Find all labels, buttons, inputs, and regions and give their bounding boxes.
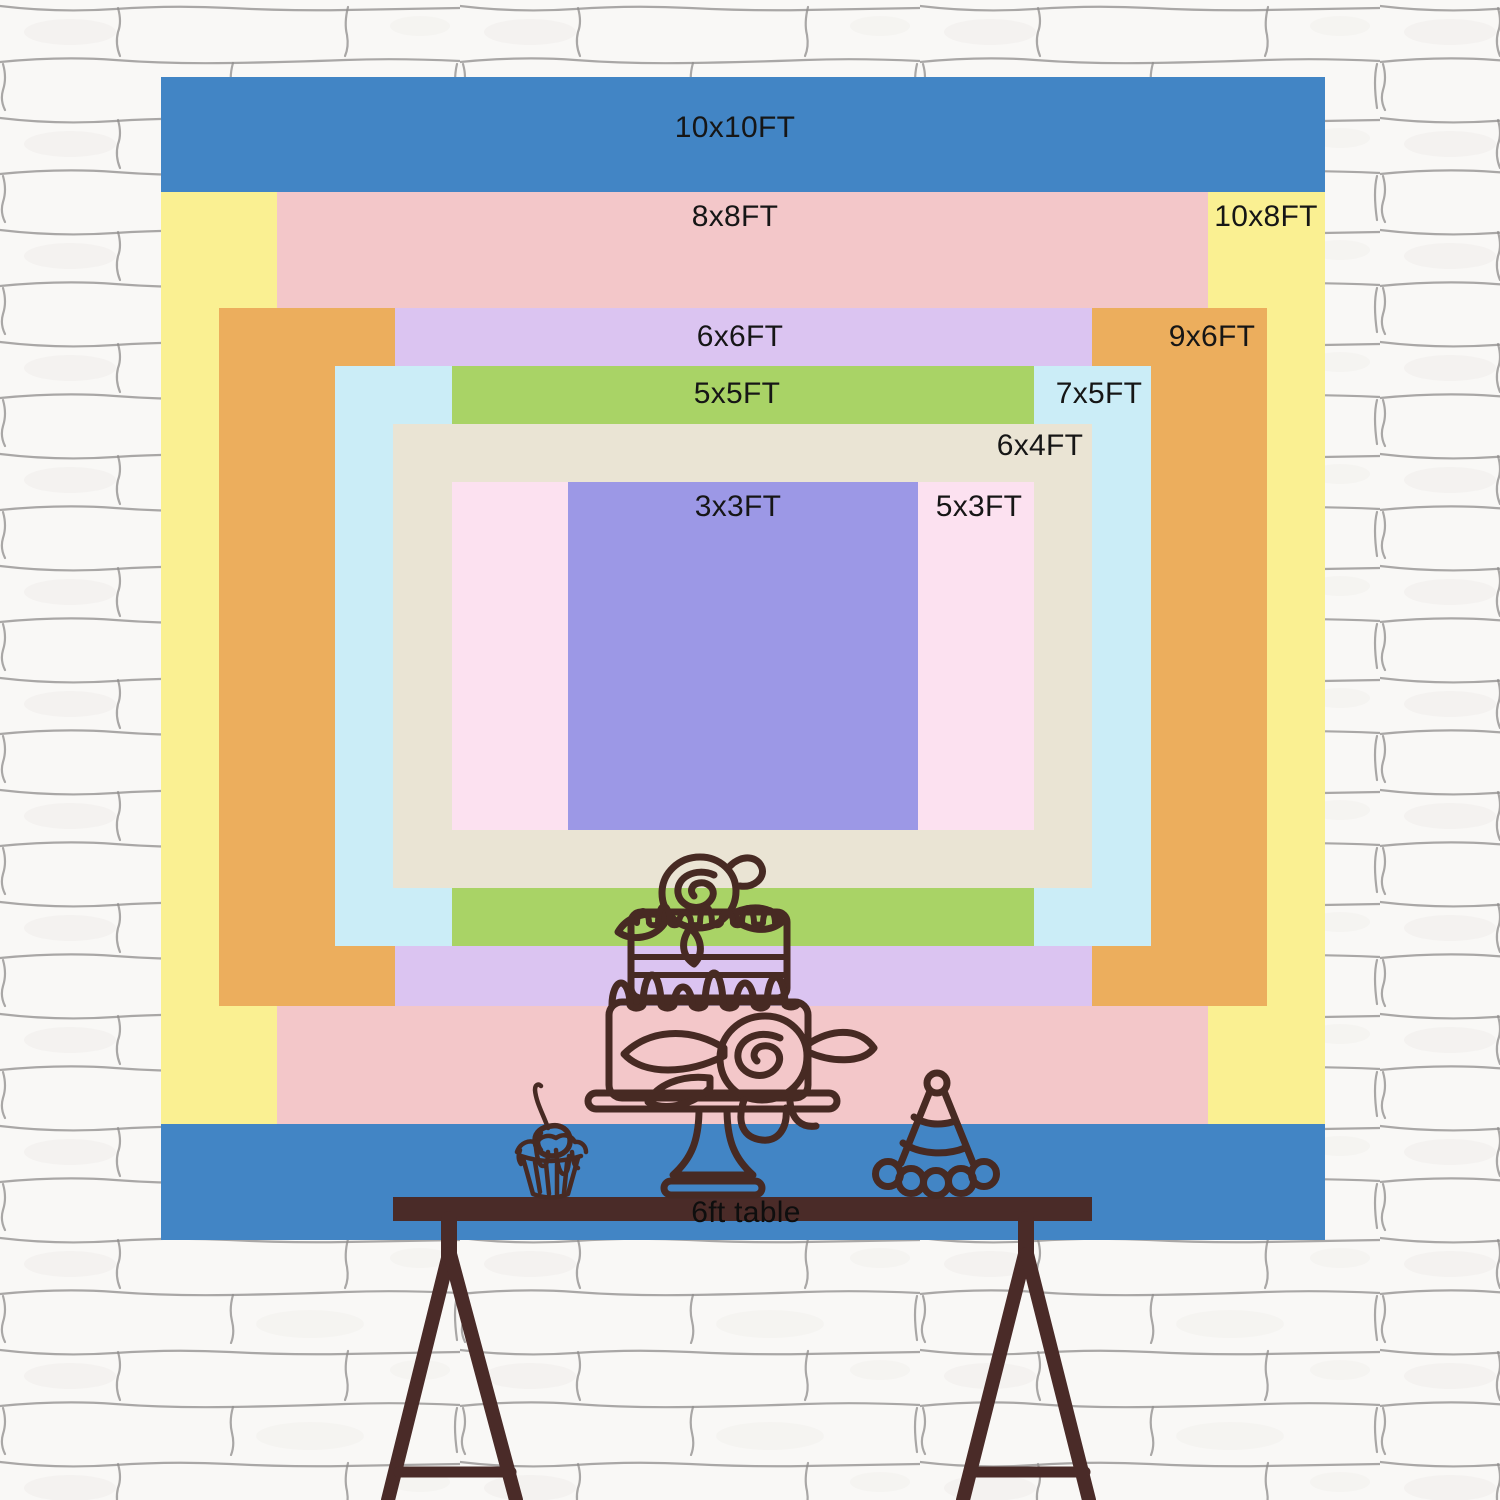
backdrop-size-3x3 [568,482,918,830]
size-label-6x6: 6x6FT [697,320,784,354]
size-label-10x8: 10x8FT [1214,200,1318,234]
size-label-5x3: 5x3FT [936,490,1023,524]
table-label: 6ft table [691,1196,800,1230]
size-label-9x6: 9x6FT [1169,320,1256,354]
size-label-5x5: 5x5FT [694,377,781,411]
size-label-7x5: 7x5FT [1056,377,1143,411]
size-label-3x3: 3x3FT [695,490,782,524]
scene: 10x10FT 10x8FT 8x8FT 9x6FT 6x6FT 7x5FT 5… [0,0,1500,1500]
size-label-8x8: 8x8FT [692,200,779,234]
size-label-10x10: 10x10FT [675,111,796,145]
size-label-6x4: 6x4FT [997,429,1084,463]
